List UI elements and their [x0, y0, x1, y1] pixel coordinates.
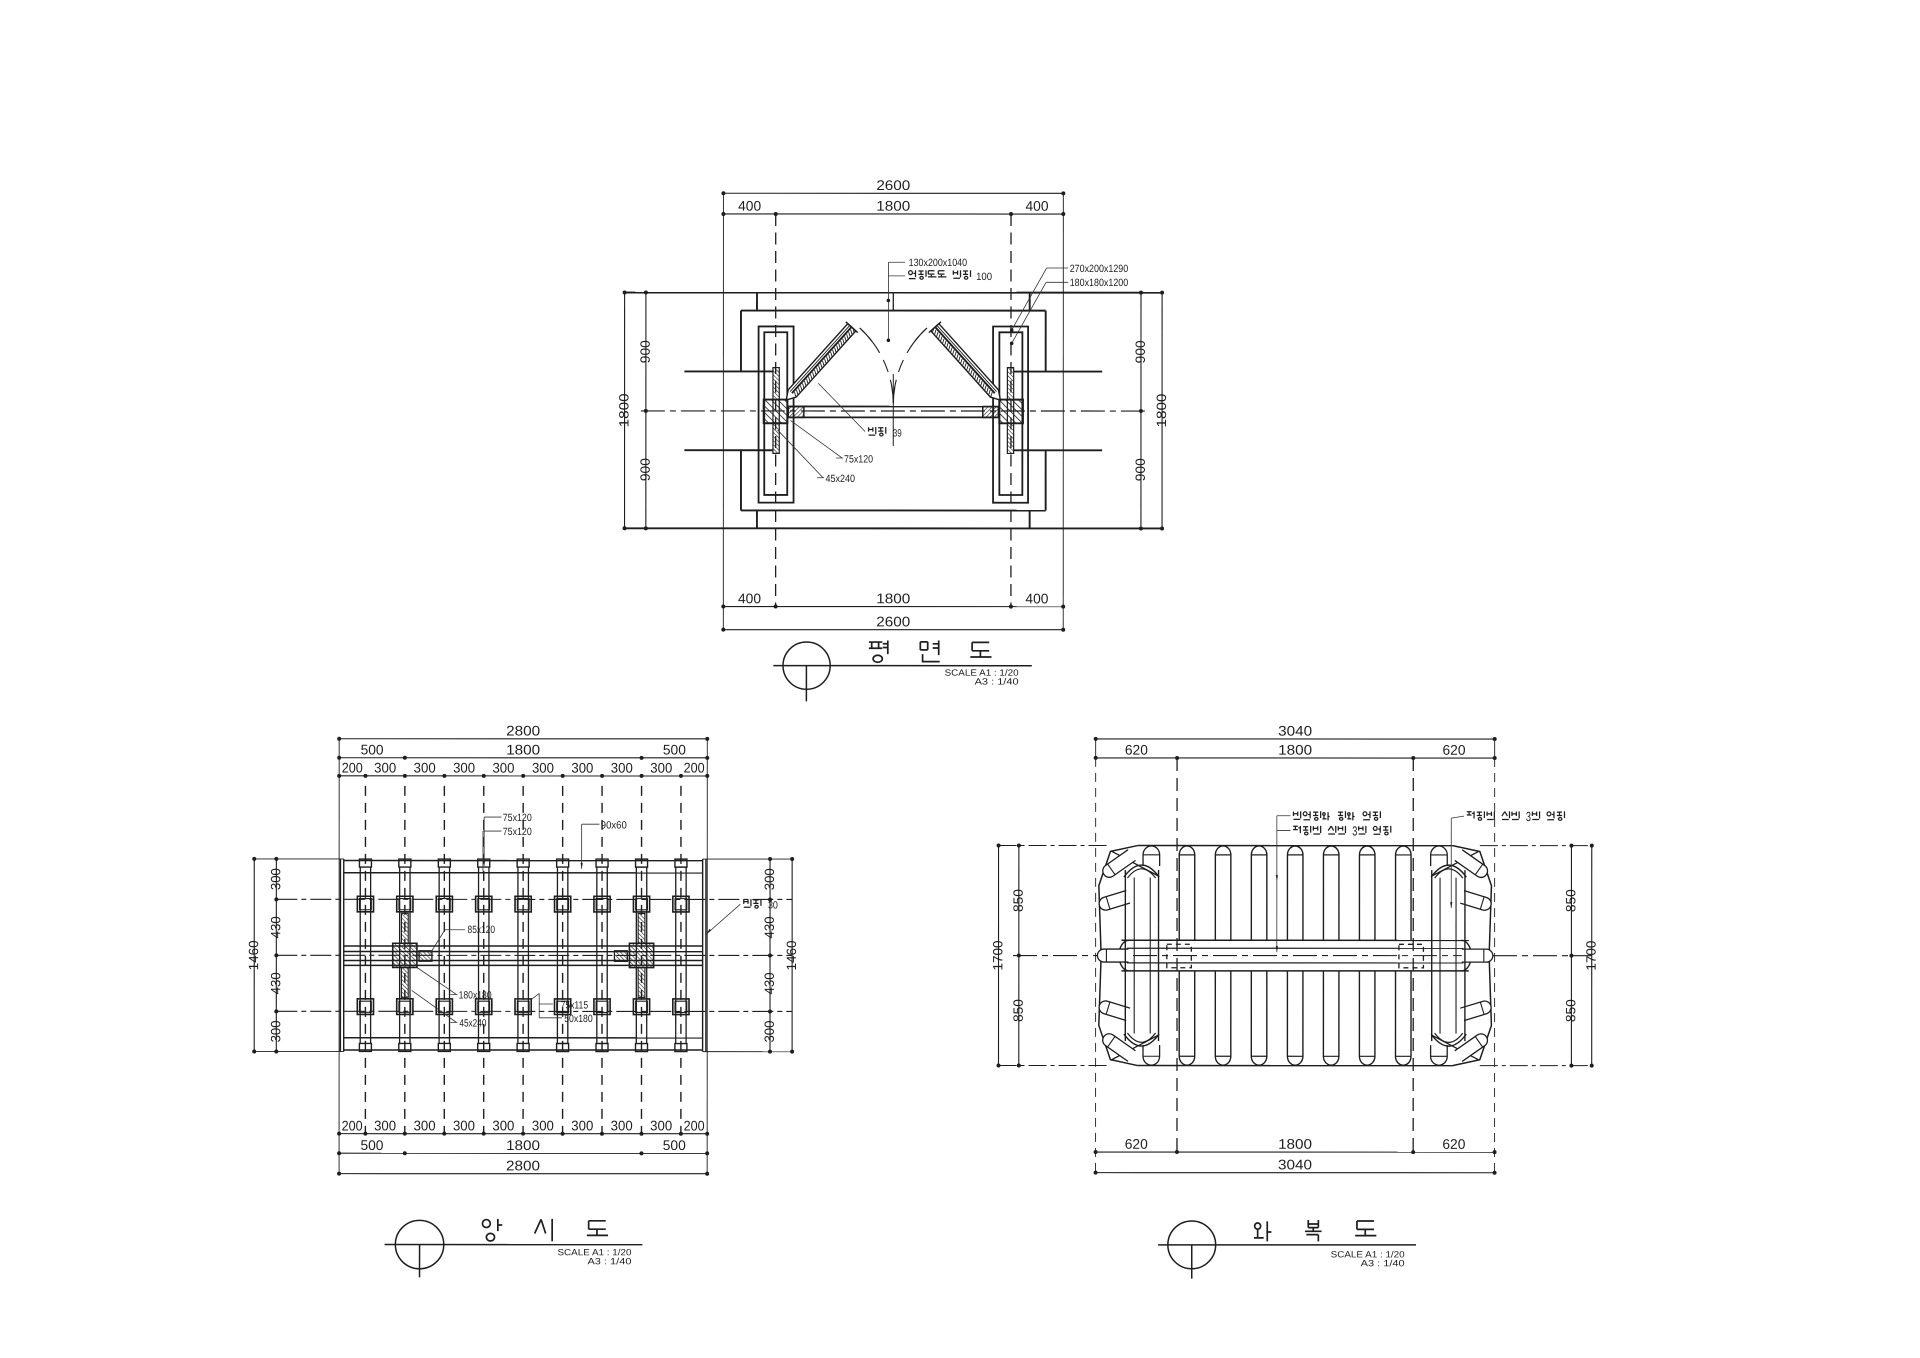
svg-text:1800: 1800 [1278, 1136, 1312, 1152]
svg-text:75x120: 75x120 [844, 453, 873, 465]
svg-text:620: 620 [1125, 742, 1148, 758]
svg-text:300: 300 [414, 1117, 436, 1133]
svg-text:300: 300 [650, 1117, 672, 1133]
svg-text:200: 200 [342, 760, 363, 776]
svg-text:430: 430 [268, 972, 283, 994]
svg-text:900: 900 [638, 340, 653, 363]
svg-text:2800: 2800 [506, 722, 540, 738]
svg-text:300: 300 [571, 760, 593, 776]
svg-text:300: 300 [268, 868, 283, 890]
svg-text:200: 200 [684, 1117, 705, 1133]
svg-text:400: 400 [738, 198, 761, 214]
svg-text:620: 620 [1442, 1136, 1465, 1152]
svg-text:50x180: 50x180 [564, 1013, 593, 1025]
svg-text:300: 300 [571, 1117, 593, 1133]
svg-text:500: 500 [663, 742, 686, 758]
svg-text:1700: 1700 [990, 941, 1005, 971]
svg-text:300: 300 [532, 760, 554, 776]
svg-text:200: 200 [684, 760, 705, 776]
svg-text:300: 300 [268, 1020, 283, 1042]
svg-text:850: 850 [1563, 999, 1578, 1022]
svg-text:85x120: 85x120 [468, 924, 496, 936]
svg-text:400: 400 [1025, 590, 1048, 606]
svg-text:300: 300 [762, 1021, 777, 1043]
svg-text:300: 300 [453, 760, 475, 776]
svg-text:A3 : 1/40: A3 : 1/40 [975, 677, 1019, 687]
svg-text:400: 400 [1026, 198, 1049, 214]
svg-text:30: 30 [768, 900, 778, 912]
svg-text:430: 430 [762, 916, 777, 938]
svg-text:500: 500 [361, 741, 384, 757]
svg-text:620: 620 [1442, 742, 1465, 758]
svg-text:300: 300 [414, 760, 436, 776]
svg-text:39: 39 [893, 428, 902, 440]
svg-text:A3 : 1/40: A3 : 1/40 [587, 1256, 631, 1266]
svg-text:300: 300 [611, 760, 633, 776]
svg-text:430: 430 [762, 972, 777, 994]
svg-text:850: 850 [1011, 999, 1026, 1022]
svg-text:1800: 1800 [876, 198, 910, 214]
svg-text:75x115: 75x115 [561, 999, 589, 1011]
svg-text:130x200x1040: 130x200x1040 [909, 257, 968, 269]
svg-text:1800: 1800 [1154, 394, 1169, 428]
svg-text:3040: 3040 [1278, 1156, 1312, 1172]
svg-text:300: 300 [532, 1117, 554, 1133]
svg-text:180x180: 180x180 [459, 990, 492, 1002]
svg-text:3: 3 [1352, 824, 1357, 839]
svg-text:300: 300 [453, 1117, 475, 1133]
svg-text:1800: 1800 [506, 741, 540, 757]
svg-text:180x180x1200: 180x180x1200 [1070, 277, 1129, 289]
svg-text:300: 300 [374, 1117, 396, 1133]
svg-text:3: 3 [1526, 809, 1531, 824]
svg-text:75x120: 75x120 [503, 812, 532, 824]
svg-text:300: 300 [762, 868, 777, 890]
svg-text:900: 900 [1133, 340, 1148, 363]
svg-text:45x240: 45x240 [459, 1017, 486, 1029]
svg-text:75x120: 75x120 [503, 826, 532, 838]
svg-text:500: 500 [663, 1137, 686, 1153]
svg-text:900: 900 [1133, 458, 1148, 481]
svg-text:1800: 1800 [1278, 742, 1312, 758]
svg-text:2600: 2600 [876, 177, 910, 193]
svg-text:500: 500 [360, 1137, 383, 1153]
svg-text:100: 100 [976, 271, 992, 283]
svg-text:3040: 3040 [1278, 723, 1312, 739]
svg-text:1800: 1800 [876, 590, 910, 606]
svg-text:1800: 1800 [506, 1137, 540, 1153]
svg-text:400: 400 [738, 590, 761, 606]
svg-text:90x60: 90x60 [601, 820, 627, 832]
svg-text:300: 300 [650, 760, 672, 776]
svg-text:2600: 2600 [876, 613, 910, 629]
svg-text:45x240: 45x240 [825, 473, 855, 485]
svg-text:850: 850 [1563, 889, 1578, 912]
svg-text:430: 430 [268, 916, 283, 938]
svg-text:200: 200 [342, 1117, 363, 1133]
svg-text:1800: 1800 [616, 393, 631, 427]
svg-text:900: 900 [638, 458, 653, 481]
svg-text:300: 300 [492, 760, 514, 776]
svg-text:A3 : 1/40: A3 : 1/40 [1361, 1258, 1405, 1268]
svg-text:300: 300 [611, 1117, 633, 1133]
svg-text:300: 300 [374, 760, 396, 776]
svg-text:850: 850 [1011, 889, 1026, 912]
svg-text:300: 300 [492, 1117, 514, 1133]
svg-text:2800: 2800 [506, 1157, 540, 1173]
svg-text:270x200x1290: 270x200x1290 [1070, 263, 1129, 275]
svg-text:1460: 1460 [246, 940, 261, 970]
svg-text:620: 620 [1125, 1136, 1148, 1152]
